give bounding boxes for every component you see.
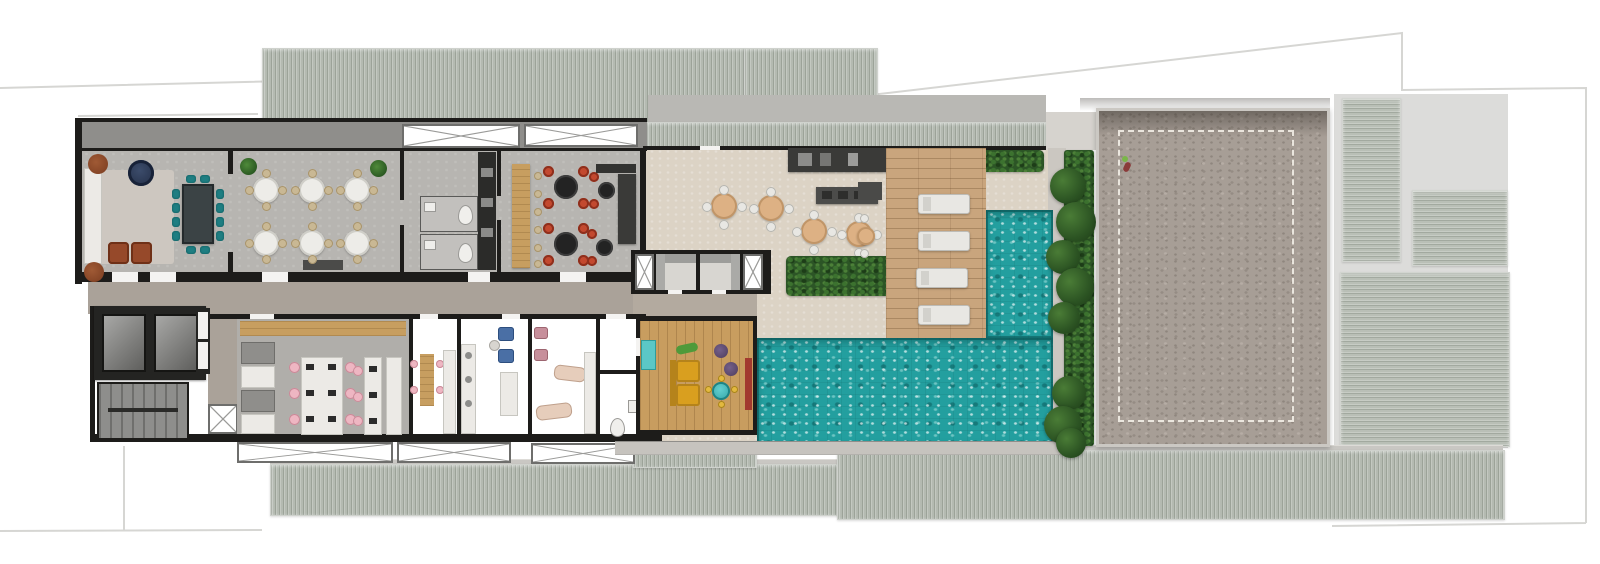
- galley-appliance: [481, 228, 493, 237]
- terrace-chair: [719, 220, 729, 230]
- stool-pink: [410, 360, 418, 368]
- chair-red: [587, 256, 597, 266]
- bar-stool: [534, 260, 542, 268]
- terrace-chair: [719, 185, 729, 195]
- dining-chair: [278, 239, 287, 248]
- coworking-cabinet: [241, 366, 275, 388]
- meeting-table: [182, 184, 214, 244]
- chair-red: [578, 198, 589, 209]
- dining-chair: [353, 255, 362, 264]
- chair-teal: [172, 231, 180, 241]
- toilet: [610, 418, 625, 437]
- chair-teal: [216, 189, 224, 199]
- dining-chair: [353, 169, 362, 178]
- chair-pink: [353, 392, 363, 402]
- bar-counter: [618, 174, 636, 244]
- terrace-table: [801, 218, 827, 244]
- void-shaft: [635, 254, 654, 290]
- deck-chair: [860, 249, 869, 258]
- wall-top-outer: [75, 118, 647, 122]
- dining-chair: [262, 202, 271, 211]
- bar-stool: [534, 244, 542, 252]
- dining-chair: [308, 169, 317, 178]
- door-gap: [636, 338, 640, 356]
- bbq-grill: [798, 153, 812, 166]
- armchair-brown-round: [88, 154, 108, 174]
- void-skylight: [402, 124, 520, 148]
- service-shaft: [198, 312, 208, 339]
- pouf-purple: [714, 344, 728, 358]
- coworking-cabinet-right: [386, 357, 402, 435]
- chair-rose: [534, 327, 548, 339]
- wall-walkway-bottom: [75, 148, 647, 151]
- bar-stool: [534, 172, 542, 180]
- wall-hall-bar-top: [497, 150, 501, 196]
- tree: [1056, 202, 1096, 242]
- toilet: [458, 205, 473, 225]
- kids-walkway: [633, 294, 757, 318]
- coworking-cabinet: [241, 414, 275, 434]
- terrace-chair: [837, 230, 847, 240]
- wall-hall-bar-bottom: [497, 220, 501, 272]
- wall-left-outer: [75, 118, 82, 284]
- door-gap: [502, 314, 520, 319]
- dining-chair: [324, 186, 333, 195]
- bbq-sink: [848, 153, 858, 166]
- wall-dining-hall-bottom: [400, 225, 404, 272]
- chair-teal: [216, 217, 224, 227]
- dining-chair: [369, 186, 378, 195]
- elevator-cab: [154, 314, 198, 372]
- door-gap: [712, 290, 726, 294]
- service-shaft: [198, 342, 208, 369]
- chair-pink: [289, 362, 300, 373]
- kids-table-teal: [712, 382, 730, 400]
- wall-dining-hall-top: [400, 150, 404, 200]
- terrace-chair: [809, 210, 819, 220]
- chair-teal: [172, 189, 180, 199]
- void-shaft: [743, 254, 763, 290]
- games-table: [554, 232, 578, 256]
- monitor: [328, 390, 336, 396]
- bar-stool: [534, 208, 542, 216]
- wall-lounge-dining-stub-top: [228, 150, 233, 174]
- dining-chair: [278, 186, 287, 195]
- monitor: [328, 416, 336, 422]
- dining-chair: [262, 169, 271, 178]
- wall-kids-top: [636, 316, 757, 321]
- wall-lounge-dining-stub-bottom: [228, 252, 233, 274]
- dining-chair: [353, 222, 362, 231]
- dining-table: [344, 177, 370, 203]
- armchair-brown-square: [131, 242, 152, 264]
- terrace-table: [711, 193, 737, 219]
- chair-red: [543, 166, 554, 177]
- bar-high-table: [512, 164, 530, 268]
- salon-side-table: [489, 340, 500, 351]
- bar-stool: [534, 190, 542, 198]
- spa-counter: [584, 352, 596, 434]
- wall-kids-left: [636, 316, 640, 435]
- main-pool: [757, 338, 1053, 443]
- chair-teal: [172, 217, 180, 227]
- void-shaft: [208, 404, 238, 434]
- elevator-cab: [102, 314, 146, 372]
- chair-pink: [289, 388, 300, 399]
- planter-bed: [786, 256, 902, 296]
- wall-room-divider: [409, 319, 413, 434]
- court-marking: [1118, 130, 1294, 422]
- void-skylight: [237, 442, 393, 463]
- dining-table: [299, 230, 325, 256]
- washbasin: [424, 202, 436, 212]
- dining-chair: [291, 186, 300, 195]
- chair-pink: [289, 414, 300, 425]
- tree: [1056, 428, 1086, 458]
- armchair-brown-round: [84, 262, 104, 282]
- dining-chair: [308, 255, 317, 264]
- side-table: [596, 239, 613, 256]
- galley-appliance: [481, 168, 493, 177]
- kids-stool: [731, 386, 738, 393]
- terrace-chair: [809, 245, 819, 255]
- monitor: [369, 392, 377, 398]
- dining-table: [253, 230, 279, 256]
- side-table: [598, 182, 615, 199]
- sauna-bench: [656, 254, 665, 290]
- grill-cart: [858, 182, 882, 200]
- sun-lounger: [916, 268, 968, 288]
- salon-cabinet: [500, 372, 518, 416]
- armchair-brown-square: [108, 242, 129, 264]
- chair-teal: [216, 203, 224, 213]
- dining-chair: [291, 239, 300, 248]
- stair-handrail: [108, 408, 178, 412]
- chair-red: [543, 198, 554, 209]
- terrace-chair: [702, 202, 712, 212]
- dining-chair: [308, 222, 317, 231]
- door-gap: [468, 272, 490, 282]
- chair-red: [578, 166, 589, 177]
- monitor: [306, 416, 314, 422]
- wall-room-divider: [596, 319, 600, 434]
- monitor: [306, 364, 314, 370]
- dining-chair: [336, 186, 345, 195]
- dining-chair: [336, 239, 345, 248]
- appliance-dial: [465, 376, 472, 383]
- potted-plant: [240, 158, 257, 175]
- sun-lounger: [918, 194, 970, 214]
- monitor: [328, 364, 336, 370]
- roof-panel-right-2: [1412, 190, 1508, 266]
- sauna-bench: [731, 254, 740, 290]
- terrace-chair: [792, 227, 802, 237]
- armchair-blue: [498, 349, 514, 363]
- chair-teal: [216, 231, 224, 241]
- terrace-chair: [766, 222, 776, 232]
- craft-shelving: [443, 350, 456, 434]
- appliance-dial: [465, 400, 472, 407]
- tree: [1050, 168, 1086, 204]
- kids-cabinet-teal: [641, 340, 656, 370]
- chair-red: [543, 255, 554, 266]
- chair-red: [589, 172, 599, 182]
- chair-teal: [186, 246, 196, 254]
- potted-plant: [370, 160, 387, 177]
- chair-teal: [200, 175, 210, 183]
- appliance-dial: [465, 352, 472, 359]
- floorplan-canvas: [0, 0, 1600, 564]
- coworking-cabinet: [241, 342, 275, 364]
- tree: [1048, 302, 1080, 334]
- chair-red: [543, 223, 554, 234]
- chair-teal: [172, 203, 180, 213]
- chair-pink: [353, 416, 363, 426]
- kids-stool: [718, 375, 725, 382]
- pouf-purple: [724, 362, 738, 376]
- kids-bench-red: [745, 358, 752, 410]
- sofa-white: [84, 168, 102, 264]
- sun-lounger: [918, 305, 970, 325]
- void-skylight: [397, 442, 511, 463]
- door-gap: [112, 272, 138, 282]
- deck-side-table: [857, 227, 875, 245]
- lap-pool: [986, 210, 1053, 338]
- dining-table: [253, 177, 279, 203]
- bar-stool: [534, 226, 542, 234]
- coworking-wood-counter: [240, 321, 406, 336]
- tree: [1052, 376, 1086, 410]
- roof-panel-right-1: [1342, 98, 1401, 262]
- dining-table: [299, 177, 325, 203]
- door-gap: [150, 272, 176, 282]
- dining-chair: [324, 239, 333, 248]
- void-skylight: [524, 124, 638, 147]
- dining-chair: [308, 202, 317, 211]
- kids-stool: [718, 401, 725, 408]
- door-gap: [668, 290, 682, 294]
- dining-chair: [245, 239, 254, 248]
- terrace-chair: [766, 187, 776, 197]
- sun-lounger: [918, 231, 970, 251]
- terrace-chair: [827, 227, 837, 237]
- kids-sofa-yellow: [676, 360, 700, 382]
- dining-chair: [369, 239, 378, 248]
- roof-band-bottom-left: [270, 464, 844, 516]
- terrace-chair: [737, 202, 747, 212]
- games-table: [554, 175, 578, 199]
- chair-teal: [186, 175, 196, 183]
- galley-appliance: [481, 198, 493, 207]
- terrace-chair: [784, 204, 794, 214]
- door-gap: [420, 314, 438, 319]
- pool-apron: [615, 441, 1070, 455]
- roof-band-bottom-right: [837, 450, 1505, 520]
- dining-chair: [353, 202, 362, 211]
- dining-table: [344, 230, 370, 256]
- kids-stool: [705, 386, 712, 393]
- tree: [1056, 268, 1094, 306]
- terrace-table: [758, 195, 784, 221]
- wall-wc-partition: [600, 370, 638, 374]
- door-gap: [560, 272, 586, 282]
- door-gap: [262, 272, 288, 282]
- planter-hedge-top: [980, 150, 1044, 172]
- dining-chair: [262, 255, 271, 264]
- coffee-table-navy: [128, 160, 154, 186]
- deck-chair: [860, 214, 869, 223]
- monitor: [369, 418, 377, 424]
- monitor: [369, 366, 377, 372]
- kids-sofa-yellow: [676, 384, 700, 406]
- washbasin: [424, 240, 436, 250]
- stool-pink: [410, 386, 418, 394]
- dining-chair: [262, 222, 271, 231]
- armchair-blue: [498, 327, 514, 341]
- terrace-chair: [749, 204, 759, 214]
- court-side-strip: [1046, 112, 1096, 150]
- chair-rose: [534, 349, 548, 361]
- craft-table: [420, 354, 434, 406]
- island-tray: [822, 191, 832, 199]
- chair-red: [589, 199, 599, 209]
- toilet: [458, 243, 473, 263]
- concrete-strip-top: [648, 95, 1046, 122]
- monitor: [306, 390, 314, 396]
- door-gap: [700, 146, 720, 150]
- dining-chair: [245, 186, 254, 195]
- chair-pink: [353, 366, 363, 376]
- bar-shelf: [596, 164, 636, 173]
- coworking-cabinet: [241, 390, 275, 412]
- wall-room-divider: [528, 319, 532, 434]
- bbq-grill: [820, 153, 831, 166]
- chair-teal: [200, 246, 210, 254]
- chair-red: [587, 229, 597, 239]
- roof-panel-right-3: [1340, 272, 1510, 447]
- island-tray: [838, 191, 848, 199]
- wall-kids-bottom: [636, 430, 757, 435]
- door-gap: [606, 314, 626, 319]
